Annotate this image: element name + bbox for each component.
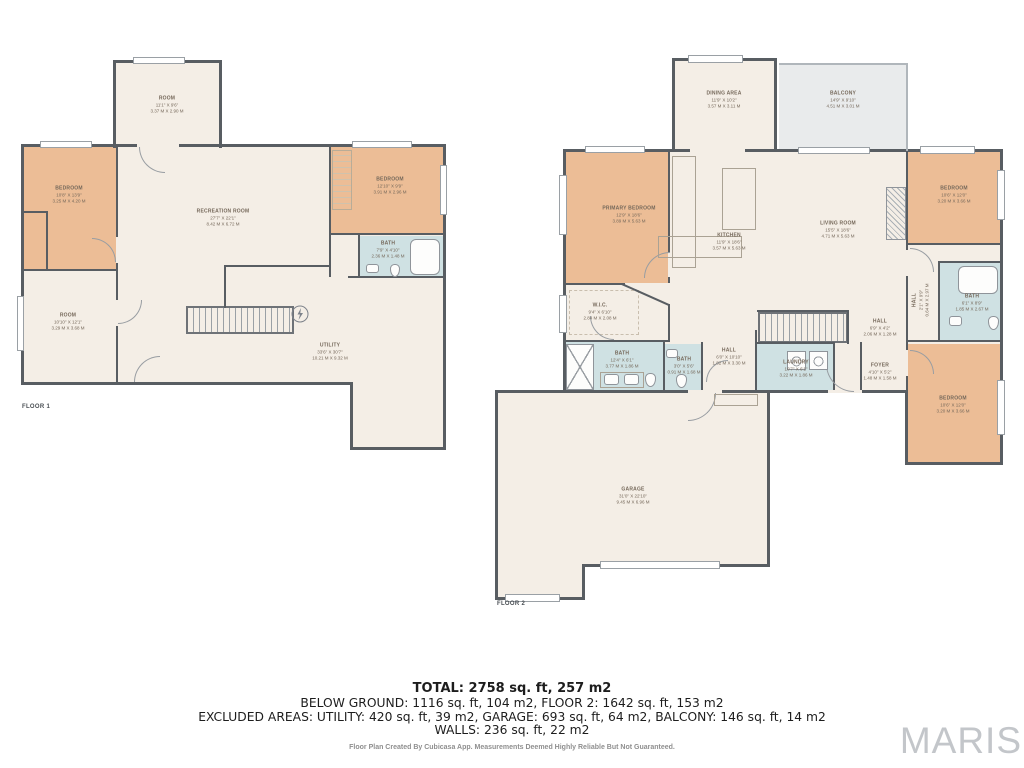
maris-watermark: MARIS	[900, 720, 1022, 762]
wall	[350, 382, 353, 450]
wall	[905, 390, 908, 465]
room-label-f1-bath: BATH 7'9" X 4'10" 2.36 M X 1.48 M	[371, 241, 404, 260]
room-label-f2-kitchen: KITCHEN 11'9" X 18'6" 3.57 M X 5.63 M	[712, 233, 745, 252]
wall	[908, 243, 1001, 245]
window	[440, 165, 447, 215]
furniture-outline	[722, 168, 756, 230]
closet-f1-right	[332, 150, 352, 210]
window	[600, 561, 720, 569]
wall	[755, 342, 835, 344]
wall	[767, 390, 770, 567]
floor2-label: FLOOR 2	[497, 601, 525, 607]
room-label-f1-utility: UTILITY 33'6" X 30'7" 10.21 M X 9.32 M	[312, 343, 348, 362]
balcony-wall	[906, 63, 908, 151]
window	[997, 170, 1005, 220]
window	[559, 295, 567, 333]
window	[40, 141, 92, 148]
window	[133, 57, 185, 64]
wall	[495, 390, 773, 393]
wall	[938, 261, 940, 342]
door-opening	[906, 350, 908, 376]
room-label-f2-bedroom-top-right: BEDROOM 10'6" X 12'0" 3.20 M X 3.66 M	[937, 186, 970, 205]
room-label-f1-bedroom-right: BEDROOM 12'10" X 9'9" 3.91 M X 2.96 M	[373, 177, 406, 196]
room-label-f1-room-top: ROOM 11'1" X 9'6" 3.37 M X 2.90 M	[150, 96, 183, 115]
room-label-f2-living-room: LIVING ROOM 15'5" X 18'6" 4.71 M X 5.63 …	[820, 221, 856, 240]
room-label-f2-hall-right: HALL 6'9" X 4'2" 2.06 M X 1.28 M	[863, 319, 896, 338]
window	[585, 146, 645, 153]
wall	[21, 211, 48, 213]
wall	[563, 283, 625, 285]
room-f1-utility-ext	[350, 385, 446, 450]
bathtub-icon	[958, 266, 998, 294]
furniture-outline	[600, 372, 644, 388]
wall	[21, 269, 117, 271]
wall	[563, 340, 670, 342]
wall	[938, 261, 1003, 263]
room-label-f1-recreation-room: RECREATION ROOM 27'7" X 22'1" 8.42 M X 6…	[197, 209, 250, 228]
wall	[701, 342, 703, 391]
window	[997, 380, 1005, 435]
furniture-outline	[714, 394, 758, 406]
area-summary: TOTAL: 2758 sq. ft, 257 m2 BELOW GROUND:…	[0, 681, 1024, 751]
room-label-f2-laundry: LAUNDRY 10'7" X 6'1" 3.22 M X 1.86 M	[779, 360, 812, 379]
wall	[663, 342, 665, 391]
window	[559, 175, 567, 235]
door-opening	[116, 237, 118, 263]
bathtub-icon	[410, 239, 440, 275]
wall	[46, 211, 48, 271]
floor1-label: FLOOR 1	[22, 404, 50, 410]
room-label-f2-bath-primary: BATH 12'4" X 6'1" 3.77 M X 1.86 M	[605, 351, 638, 370]
room-label-f2-foyer: FOYER 4'10" X 5'2" 1.48 M X 1.58 M	[863, 363, 896, 382]
shower-icon	[566, 344, 594, 390]
wall	[224, 265, 226, 308]
window	[798, 147, 870, 154]
wall	[860, 342, 862, 392]
summary-total: TOTAL: 2758 sq. ft, 257 m2	[0, 681, 1024, 696]
room-label-f2-bath-small: BATH 3'0" X 5'6" 0.91 M X 1.68 M	[667, 357, 700, 376]
summary-floors: BELOW GROUND: 1116 sq. ft, 104 m2, FLOOR…	[0, 697, 1024, 711]
room-label-f2-bedroom-bottom-right: BEDROOM 10'6" X 12'0" 3.20 M X 3.66 M	[936, 396, 969, 415]
wall	[21, 382, 353, 385]
room-label-f2-garage: GARAGE 31'0" X 22'10" 9.45 M X 6.96 M	[616, 487, 649, 506]
wall	[774, 58, 777, 149]
wall	[358, 233, 360, 278]
summary-disclaimer: Floor Plan Created By Cubicasa App. Meas…	[0, 744, 1024, 751]
wall	[847, 310, 849, 344]
wall	[219, 60, 222, 148]
room-label-f2-wic: W.I.C. 9'4" X 6'10" 2.84 M X 2.08 M	[583, 303, 616, 322]
wall	[116, 144, 118, 382]
wall	[755, 330, 757, 391]
wall	[350, 447, 446, 450]
wall	[908, 340, 1003, 342]
wall	[329, 146, 331, 277]
room-label-f1-bedroom-left: BEDROOM 10'8" X 13'9" 3.25 M X 4.20 M	[52, 186, 85, 205]
wall	[906, 149, 908, 245]
room-label-f2-balcony: BALCONY 14'9" X 9'10" 4.51 M X 3.01 M	[826, 91, 859, 110]
door-opening	[690, 149, 745, 152]
wall	[757, 310, 849, 312]
window	[352, 141, 412, 148]
sink-icon	[366, 264, 379, 273]
wall	[582, 567, 585, 600]
electrical-symbol-icon	[291, 305, 309, 323]
wall	[495, 390, 498, 600]
door-opening	[906, 250, 908, 276]
room-label-f2-hall-vertical: HALL 2'1" X 9'9" 0.64 M X 2.97 M	[912, 283, 931, 316]
room-label-f2-primary-bedroom: PRIMARY BEDROOM 12'9" X 18'6" 3.89 M X 5…	[602, 206, 655, 225]
summary-excluded: EXCLUDED AREAS: UTILITY: 420 sq. ft, 39 …	[0, 711, 1024, 725]
wall	[908, 462, 1003, 465]
floor-plan-page: ROOM 11'1" X 9'6" 3.37 M X 2.90 M BEDROO…	[0, 0, 1024, 768]
fireplace-hatch	[886, 187, 906, 240]
stairs-floor1	[186, 306, 294, 334]
summary-walls: WALLS: 236 sq. ft, 22 m2	[0, 724, 1024, 738]
stairs-floor2	[758, 312, 848, 343]
room-label-f2-dining: DINING AREA 11'9" X 10'2" 3.57 M X 3.11 …	[706, 91, 741, 110]
room-label-f1-room-bottom: ROOM 10'10" X 12'1" 3.29 M X 3.68 M	[51, 313, 84, 332]
wall	[224, 265, 331, 267]
room-label-f2-hall-center: HALL 6'0" X 10'10" 1.82 M X 3.30 M	[712, 348, 745, 367]
room-f2-garage	[495, 393, 770, 567]
window	[920, 146, 975, 154]
balcony-wall	[779, 63, 908, 65]
wall	[668, 304, 670, 342]
wall	[672, 58, 675, 149]
wall	[113, 60, 116, 148]
window	[17, 296, 24, 351]
window	[688, 55, 743, 63]
sink-icon	[949, 316, 962, 326]
wall	[329, 233, 443, 235]
room-label-f2-bath-right: BATH 6'1" X 8'9" 1.85 M X 2.67 M	[955, 294, 988, 313]
